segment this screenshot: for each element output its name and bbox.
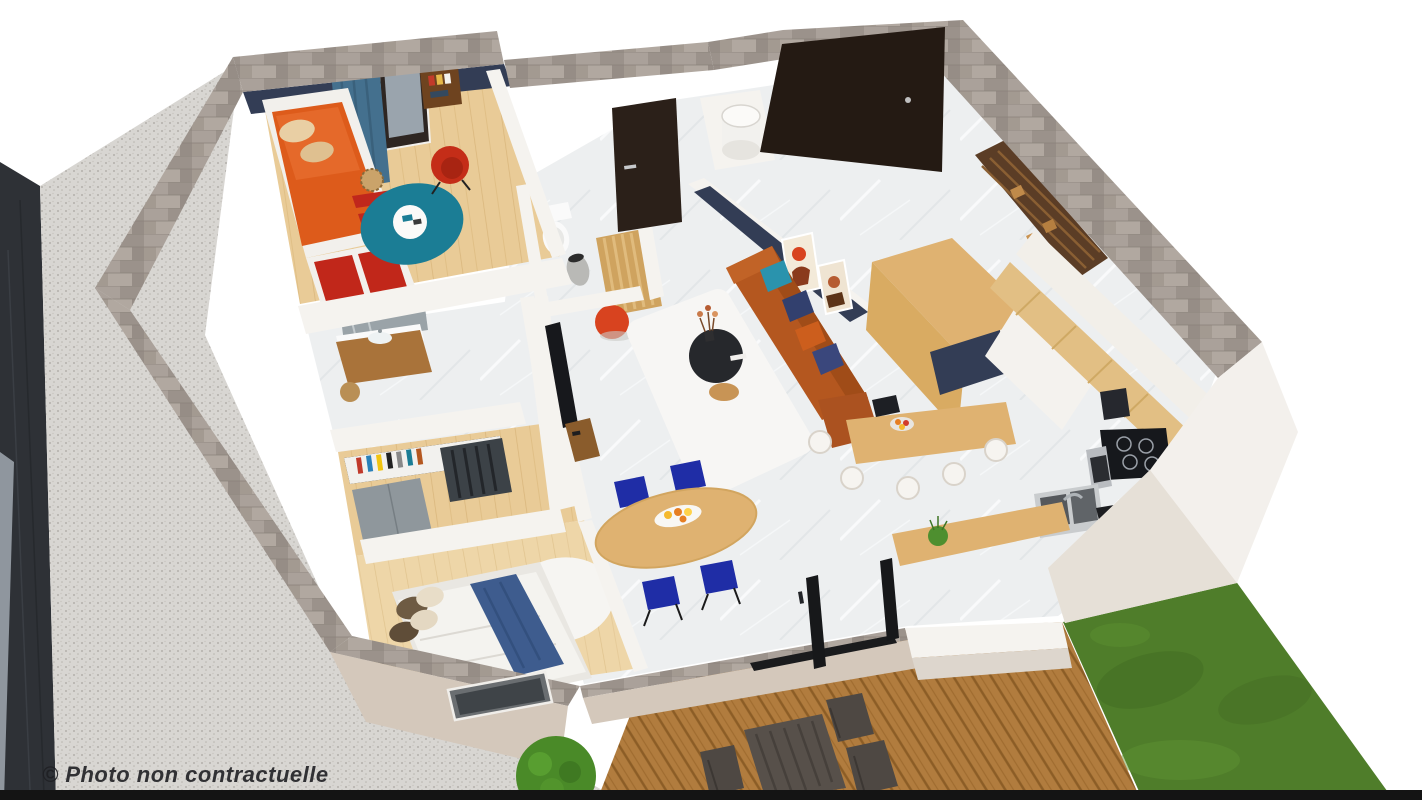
wall-bookshelf	[420, 67, 462, 109]
side-table	[393, 205, 427, 239]
coffee-machine	[1100, 388, 1130, 420]
laundry-basket	[340, 382, 360, 402]
floor-plan-canvas	[0, 0, 1422, 800]
watermark: © Photo non contractuelle	[42, 762, 329, 788]
hanging-clothes	[440, 438, 512, 502]
water-heater	[722, 105, 760, 160]
vase	[704, 330, 715, 341]
bottom-edge-bar	[0, 790, 1422, 800]
floor-plan-render: © Photo non contractuelle	[0, 0, 1422, 800]
door-handle	[905, 97, 911, 103]
counter-plant	[928, 526, 948, 546]
garage-door	[760, 27, 945, 172]
interior-door	[612, 98, 682, 232]
